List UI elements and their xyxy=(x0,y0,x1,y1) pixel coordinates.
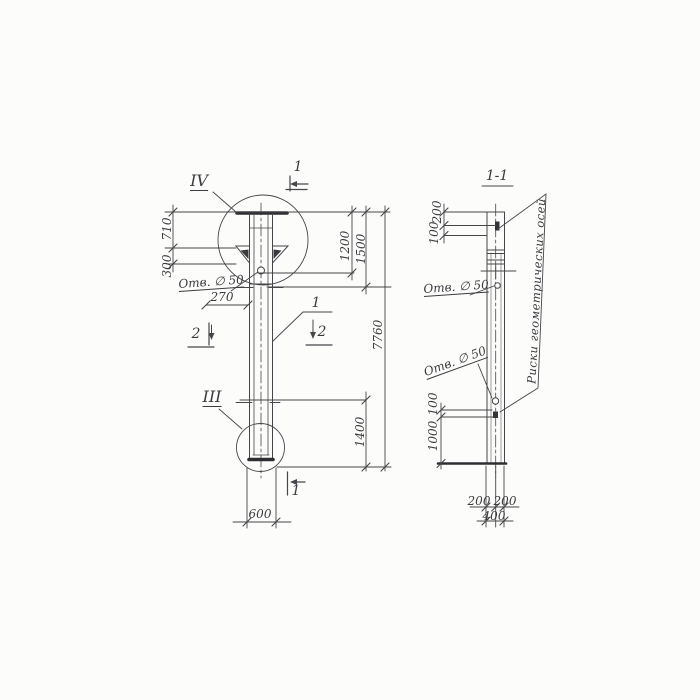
dim-label-100-mid: 100 xyxy=(427,393,439,416)
dim-label-300: 300 xyxy=(161,255,173,278)
axis-mark-top xyxy=(495,222,500,231)
dim-label-1200: 1200 xyxy=(339,231,351,262)
dim-label-200-bottom-left: 200 xyxy=(468,495,491,507)
left-view-linework xyxy=(165,176,391,528)
dim-label-200-top: 200 xyxy=(431,201,443,224)
section-mark-1-top: 1 xyxy=(294,160,303,174)
dim-label-200-bottom-right: 200 xyxy=(494,495,517,507)
section-view-title: 1-1 xyxy=(486,169,509,183)
dim-label-600: 600 xyxy=(249,508,272,520)
hole-50-section-top xyxy=(495,283,501,289)
detail-marker-iv: IV xyxy=(190,173,208,191)
dim-label-1000: 1000 xyxy=(427,421,439,452)
dim-label-100-top: 100 xyxy=(428,222,440,245)
dim-label-1400: 1400 xyxy=(354,417,366,448)
drawing-linework xyxy=(0,0,700,700)
dim-label-1500: 1500 xyxy=(355,234,367,265)
hole-50-section-bottom xyxy=(492,398,498,404)
detail-marker-iii: III xyxy=(203,389,222,407)
technical-drawing-sheet: IV 1 710 300 Отв. ∅ 50 270 2 2 1 1200 15… xyxy=(0,0,700,700)
dim-label-400: 400 xyxy=(483,510,506,522)
leader-detail-iii xyxy=(219,409,242,429)
dim-label-710: 710 xyxy=(161,218,173,241)
section-mark-2-left: 2 xyxy=(192,327,201,341)
detail-circle-bottom xyxy=(237,424,285,472)
dim-label-7760: 7760 xyxy=(372,320,384,351)
dim-label-270: 270 xyxy=(211,291,234,303)
section-mark-1-bottom: 1 xyxy=(292,484,301,498)
leader-detail-iv xyxy=(213,192,236,212)
part-callout-1: 1 xyxy=(312,296,321,310)
leader-hole-section-bottom xyxy=(478,364,492,398)
section-mark-2-right: 2 xyxy=(318,325,327,339)
